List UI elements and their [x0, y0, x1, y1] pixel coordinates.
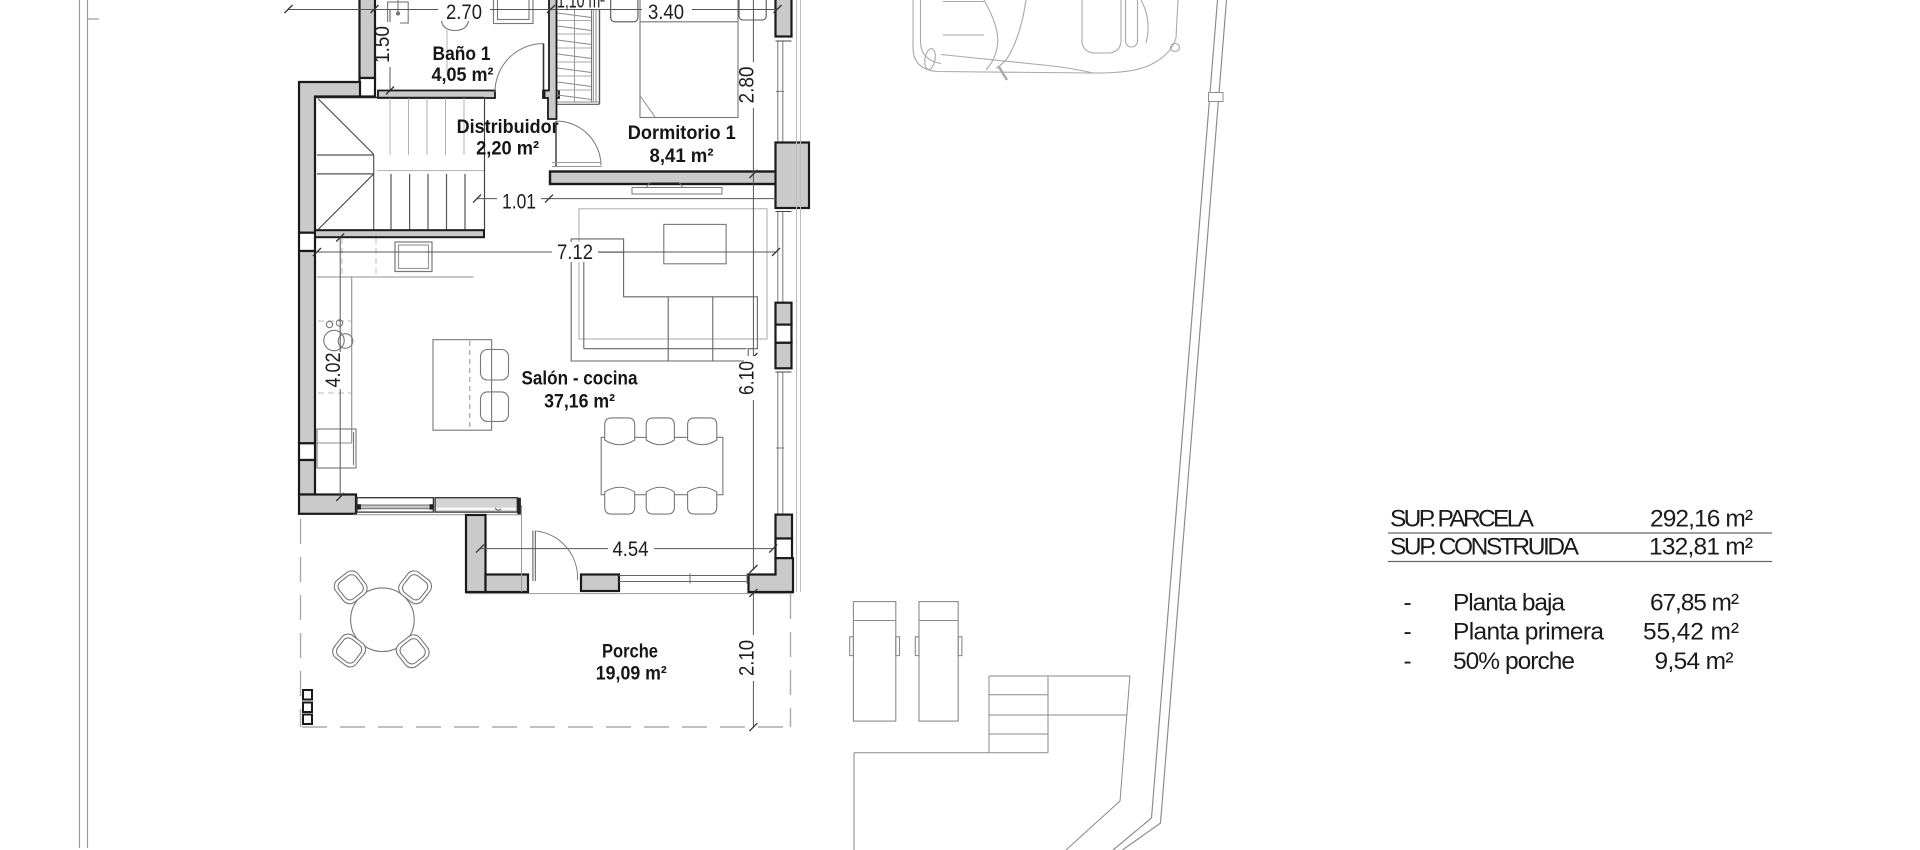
- svg-text:SUP. CONSTRUIDA: SUP. CONSTRUIDA: [1390, 533, 1580, 560]
- svg-text:Planta baja: Planta baja: [1453, 590, 1565, 617]
- svg-text:7.12: 7.12: [557, 241, 593, 264]
- svg-text:2.10: 2.10: [736, 640, 759, 676]
- svg-text:2.70: 2.70: [446, 1, 482, 24]
- svg-text:132,81 m²: 132,81 m²: [1649, 533, 1753, 560]
- svg-text:Salón - cocina: Salón - cocina: [522, 368, 638, 390]
- svg-text:Distribuidor: Distribuidor: [457, 116, 559, 138]
- svg-text:292,16 m²: 292,16 m²: [1650, 505, 1753, 532]
- svg-text:4.02: 4.02: [322, 353, 345, 388]
- svg-text:55,42 m²: 55,42 m²: [1643, 619, 1739, 646]
- svg-text:3.40: 3.40: [648, 1, 684, 24]
- svg-text:-: -: [1404, 619, 1412, 646]
- svg-text:2.80: 2.80: [736, 67, 759, 104]
- svg-text:Baño 1: Baño 1: [433, 43, 491, 65]
- svg-text:8,41 m²: 8,41 m²: [650, 145, 714, 167]
- svg-text:6.10: 6.10: [736, 361, 759, 395]
- svg-text:Porche: Porche: [602, 641, 658, 663]
- svg-text:1.01: 1.01: [502, 191, 536, 214]
- svg-text:4,05 m²: 4,05 m²: [432, 64, 494, 86]
- svg-text:Planta primera: Planta primera: [1453, 619, 1604, 646]
- svg-text:37,16 m²: 37,16 m²: [544, 391, 615, 413]
- svg-text:2,20 m²: 2,20 m²: [476, 138, 539, 160]
- svg-text:Dormitorio 1: Dormitorio 1: [628, 122, 736, 144]
- svg-text:1,10 m²: 1,10 m²: [557, 0, 605, 13]
- svg-text:-: -: [1404, 590, 1412, 617]
- svg-text:1.50: 1.50: [371, 26, 394, 63]
- svg-text:50% porche: 50% porche: [1453, 648, 1575, 675]
- svg-text:-: -: [1404, 648, 1412, 675]
- svg-text:9,54 m²: 9,54 m²: [1655, 648, 1734, 675]
- svg-text:67,85 m²: 67,85 m²: [1650, 590, 1739, 617]
- svg-text:SUP. PARCELA: SUP. PARCELA: [1390, 505, 1535, 532]
- svg-text:19,09 m²: 19,09 m²: [596, 663, 667, 685]
- svg-text:4.54: 4.54: [613, 538, 649, 561]
